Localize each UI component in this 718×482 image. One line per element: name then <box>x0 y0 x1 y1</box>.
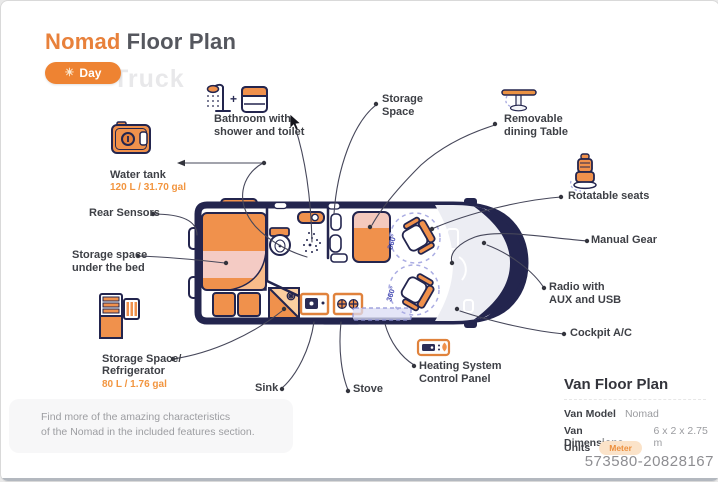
leader-stove <box>340 322 348 390</box>
label-radio: Radio with AUX and USB <box>549 281 621 306</box>
dinette-bed <box>353 212 390 262</box>
page: NomadFloor Plan Truck ☀ Day <box>0 0 718 482</box>
leader-heating <box>385 324 414 365</box>
label-water-tank-title: Water tank <box>110 169 166 181</box>
label-bathroom: Bathroom with shower and toilet <box>214 113 304 138</box>
bed <box>202 213 266 290</box>
label-storage-under-bed: Storage space under the bed <box>72 249 147 274</box>
label-water-tank: Water tank 120 L / 31.70 gal <box>110 156 186 207</box>
water-tank-icon <box>112 122 150 153</box>
refrigerator-icon <box>100 294 139 338</box>
label-fridge: Storage Space/ Refrigerator 80 L / 1.76 … <box>102 340 181 403</box>
label-rear-sensors: Rear Sensors <box>89 207 160 220</box>
van-model-value: Nomad <box>625 408 659 420</box>
label-storage-space: Storage Space <box>382 93 423 118</box>
note-text: Find more of the amazing characteristics… <box>41 410 255 440</box>
leader-storage-space <box>334 105 376 214</box>
label-cockpit-ac: Cockpit A/C <box>570 327 632 340</box>
shower-icon <box>207 85 230 111</box>
heating-unit <box>353 308 411 320</box>
label-removable-table: Removable dining Table <box>504 113 568 138</box>
corner-cabinet <box>269 288 299 318</box>
label-stove: Stove <box>353 383 383 396</box>
footer-id-number: 573580-20828167 <box>585 453 714 470</box>
rotatable-seat-icon <box>571 154 596 191</box>
info-row-van-model: Van Model Nomad <box>564 408 659 420</box>
info-panel-title: Van Floor Plan <box>564 376 668 393</box>
label-heating: Heating System Control Panel <box>419 360 502 385</box>
van-model-label: Van Model <box>564 408 616 420</box>
label-water-tank-value: 120 L / 31.70 gal <box>110 182 186 194</box>
label-rotatable-seats: Rotatable seats <box>568 190 649 203</box>
label-fridge-value: 80 L / 1.76 gal <box>102 379 181 391</box>
dining-table-icon <box>502 90 536 111</box>
label-fridge-title: Storage Space/ Refrigerator <box>102 353 181 378</box>
plus-icon: + <box>230 92 237 106</box>
label-manual-gear: Manual Gear <box>591 234 657 247</box>
label-sink: Sink <box>255 382 278 395</box>
sink-unit <box>301 294 328 314</box>
toilet-icon <box>242 87 267 112</box>
note-box: Find more of the amazing characteristics… <box>9 399 293 453</box>
leader-sink <box>282 322 314 388</box>
info-panel-divider <box>564 399 706 400</box>
van-dimensions-value: 6 x 2 x 2.75 m <box>654 425 718 449</box>
heating-panel-icon <box>418 340 449 355</box>
